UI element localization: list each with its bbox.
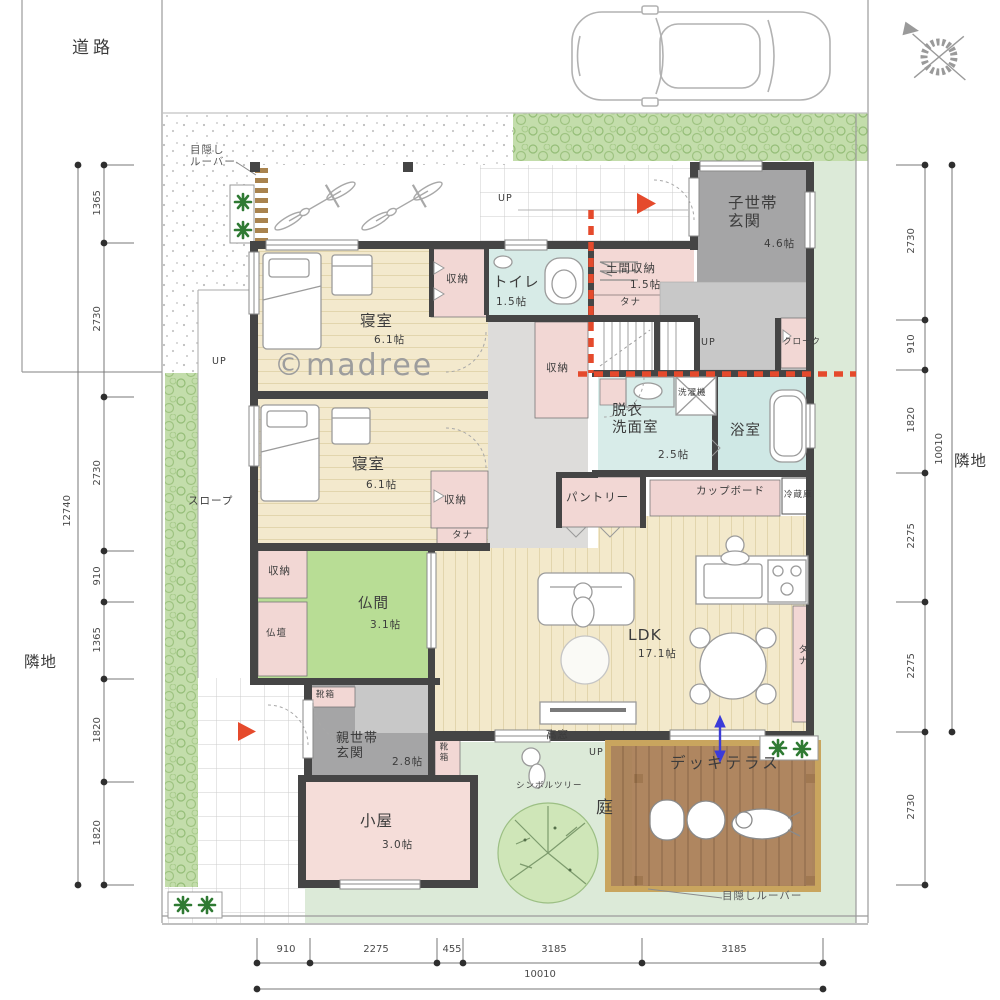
bathtub: [770, 390, 806, 462]
dim-bottom-3: 3185: [532, 944, 576, 956]
watermark: ©madree: [274, 348, 433, 383]
up-label-slope: UP: [212, 356, 227, 367]
child-entrance-size: 4.6帖: [764, 238, 795, 250]
shelf-label-ldk: タナ: [796, 644, 807, 667]
up-label-porch: UP: [498, 193, 513, 204]
child-entrance-label: 子世帯 玄関: [728, 194, 778, 231]
washroom-size: 2.5帖: [658, 449, 689, 461]
symbol-tree: [498, 803, 598, 903]
kitchen-counter: [696, 556, 808, 604]
closet-label-1: 収納: [446, 273, 469, 285]
closet-label-butsuma: 収納: [268, 565, 291, 577]
pantry-label: パントリー: [566, 491, 629, 505]
shoe-box-label-1: 靴箱: [316, 690, 335, 700]
garden-label: 庭: [596, 798, 617, 818]
dim-left-5: 1820: [92, 708, 104, 752]
doma-storage-size: 1.5帖: [630, 279, 661, 291]
closet-label-2: 収納: [444, 494, 467, 506]
dim-left-total: 12740: [62, 489, 74, 533]
toilet-label: トイレ: [493, 275, 540, 292]
dim-right-3: 2275: [906, 514, 918, 558]
dim-bottom-4: 3185: [712, 944, 756, 956]
neighbor-label-right: 隣地: [954, 452, 987, 470]
butsuma-label: 仏間: [358, 596, 389, 613]
bath-label: 浴室: [730, 423, 761, 440]
shelf-label-doma: タナ: [620, 297, 641, 308]
koya-size: 3.0帖: [382, 839, 413, 851]
ldk-size: 17.1帖: [638, 648, 677, 660]
deck-furniture: [650, 800, 800, 840]
cloak-label: クローク: [783, 337, 821, 347]
floor-plan-page: 道路 目隠し ルーバー 目隠しルーバー UP UP UP UP スロープ 隣地 …: [0, 0, 1000, 1000]
shoe-box-label-2: 靴箱: [438, 742, 448, 763]
dim-left-1: 2730: [92, 297, 104, 341]
dim-right-4: 2275: [906, 644, 918, 688]
tv-board: [540, 702, 636, 724]
up-label-deck: UP: [589, 747, 604, 758]
bed: [263, 253, 321, 349]
dim-left-2: 2730: [92, 451, 104, 495]
dim-left-0: 1365: [92, 181, 104, 225]
dim-left-3: 910: [92, 554, 104, 598]
privacy-louver-label-top: 目隠し ルーバー: [190, 144, 236, 169]
butsuma-size: 3.1帖: [370, 619, 401, 631]
car: [572, 6, 830, 106]
doma-storage-label: 土間収納: [606, 262, 656, 276]
symbol-tree-label: シンボルツリー: [516, 781, 583, 791]
closet-label-hall: 収納: [546, 362, 569, 374]
road-label: 道路: [72, 38, 114, 58]
high-window-label: 高窓: [546, 729, 569, 741]
dining-table: [690, 628, 776, 704]
dim-left-6: 1820: [92, 811, 104, 855]
dim-bottom-1: 2275: [354, 944, 398, 956]
bed: [261, 405, 319, 501]
dim-right-5: 2730: [906, 785, 918, 829]
deck-terrace-label: デッキテラス: [670, 754, 781, 772]
toilet-size: 1.5帖: [496, 296, 527, 308]
neighbor-label-left: 隣地: [24, 653, 57, 671]
dim-bottom-0: 910: [264, 944, 308, 956]
ldk-label: LDK: [628, 626, 662, 644]
bedroom2-label: 寝室: [352, 455, 385, 473]
fridge-label: 冷蔵庫: [784, 490, 813, 500]
parent-entrance-label: 親世帯 玄関: [336, 731, 378, 762]
butsudan-label: 仏壇: [266, 628, 287, 639]
stairs: [596, 322, 696, 372]
cupboard-label: カップボード: [696, 485, 765, 497]
dim-right-1: 910: [906, 322, 918, 366]
washroom-label: 脱衣 洗面室: [612, 403, 659, 437]
parent-entrance-size: 2.8帖: [392, 756, 423, 768]
compass-icon: [897, 6, 977, 95]
wash-basin: [634, 383, 662, 399]
dim-left-4: 1365: [92, 618, 104, 662]
bedroom1-size: 6.1帖: [374, 334, 405, 346]
dim-right-0: 2730: [906, 219, 918, 263]
washer-label: 洗濯機: [678, 388, 707, 398]
bedroom2-size: 6.1帖: [366, 479, 397, 491]
dim-right-2: 1820: [906, 398, 918, 442]
sofa: [538, 573, 634, 627]
rug: [561, 636, 609, 684]
slope-label: スロープ: [188, 495, 233, 507]
bedroom1-label: 寝室: [360, 312, 393, 330]
shelf-label-corridor: タナ: [452, 530, 473, 541]
floor-plan-graphic: [0, 0, 1000, 1000]
dim-bottom-2: 455: [430, 944, 474, 956]
dim-bottom-total: 10010: [518, 969, 562, 981]
dim-right-total: 10010: [934, 427, 946, 471]
koya-label: 小屋: [360, 812, 393, 830]
up-label-stairs: UP: [701, 337, 716, 348]
privacy-louver-label-bottom: 目隠しルーバー: [722, 890, 802, 902]
